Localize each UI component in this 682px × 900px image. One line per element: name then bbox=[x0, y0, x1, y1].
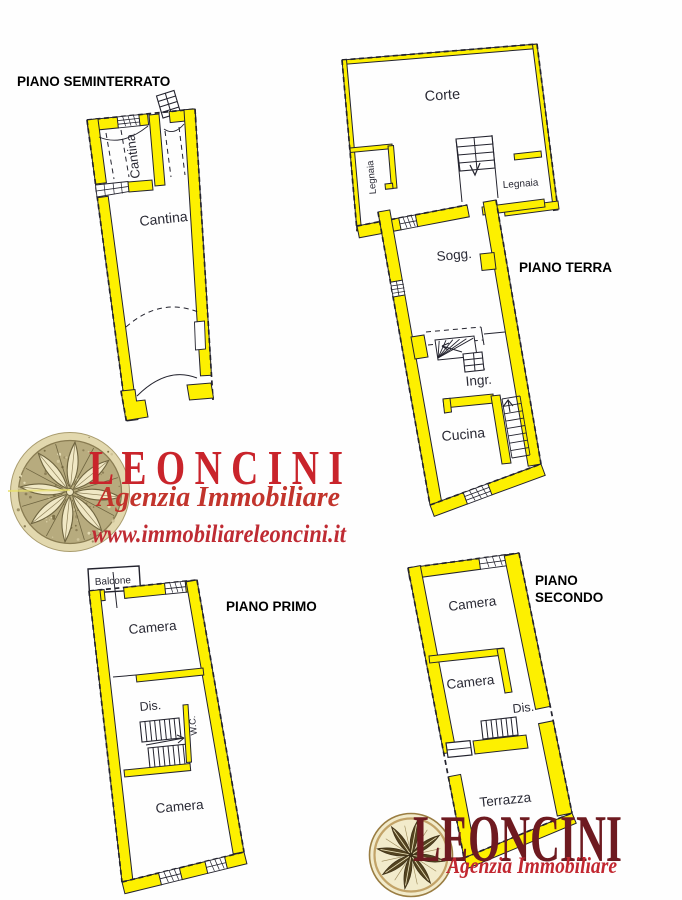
svg-text:Sogg.: Sogg. bbox=[436, 246, 472, 264]
svg-text:Dis.: Dis. bbox=[512, 700, 535, 716]
svg-text:PIANO SEMINTERRATO: PIANO SEMINTERRATO bbox=[17, 74, 170, 89]
svg-text:Agenzia Immobiliare: Agenzia Immobiliare bbox=[95, 482, 340, 513]
svg-text:Agenzia Immobiliare: Agenzia Immobiliare bbox=[445, 853, 617, 879]
svg-text:SECONDO: SECONDO bbox=[535, 590, 603, 605]
svg-text:www.immobiliareleoncini.it: www.immobiliareleoncini.it bbox=[92, 521, 347, 548]
svg-text:PIANO: PIANO bbox=[535, 573, 578, 588]
svg-text:PIANO TERRA: PIANO TERRA bbox=[519, 260, 612, 275]
svg-text:Corte: Corte bbox=[424, 87, 460, 105]
svg-text:W.C.: W.C. bbox=[187, 715, 199, 735]
svg-text:Ingr.: Ingr. bbox=[465, 372, 492, 389]
svg-text:PIANO PRIMO: PIANO PRIMO bbox=[226, 599, 317, 614]
svg-text:Dis.: Dis. bbox=[139, 698, 162, 714]
